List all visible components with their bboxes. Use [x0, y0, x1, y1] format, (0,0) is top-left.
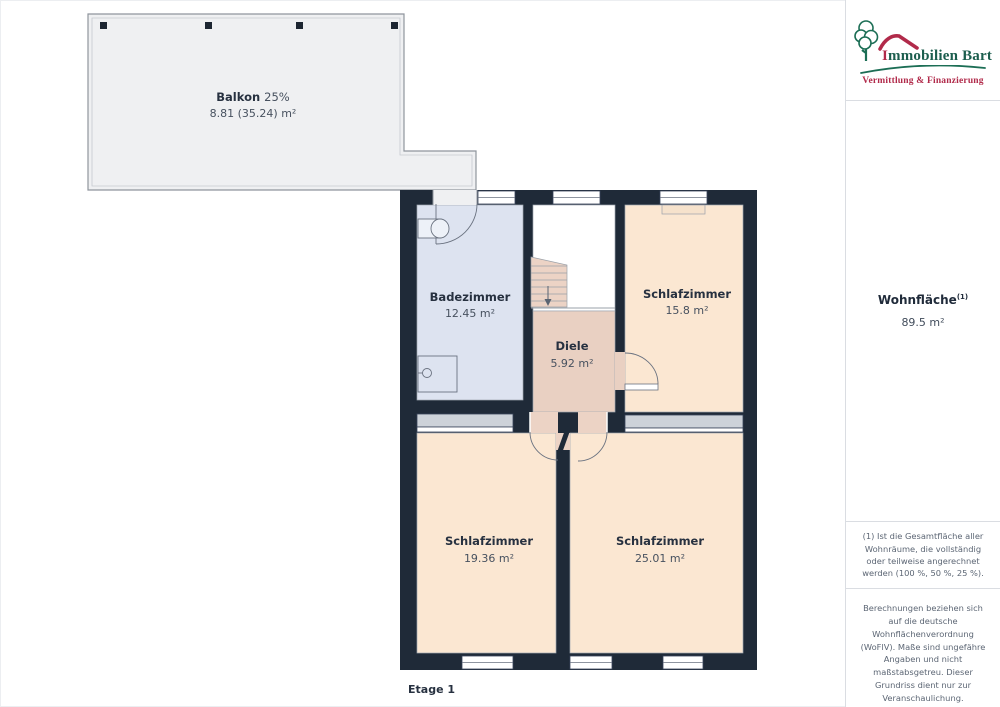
label-schlafzimmer-1: Schlafzimmer — [643, 287, 731, 301]
window — [478, 191, 515, 204]
footnote-text: (1) Ist die Gesamtfläche aller Wohnräume… — [855, 530, 991, 580]
swoosh-underline — [859, 65, 987, 74]
label-schlafzimmer-2-area: 19.36 m² — [464, 552, 514, 565]
floorplan-svg: Balkon25% 8.81 (35.24) m² Badezimmer 12.… — [0, 0, 845, 707]
living-area-value: 89.5 m² — [901, 316, 944, 329]
window — [462, 656, 513, 669]
brand-tagline: Vermittlung & Finanzierung — [862, 76, 984, 86]
label-schlafzimmer-3-area: 25.01 m² — [635, 552, 685, 565]
disclaimer: Berechnungen beziehen sich auf die deuts… — [846, 589, 1000, 707]
brand-name: Immobilien Bart — [882, 49, 992, 64]
balcony-post — [296, 22, 303, 29]
window — [570, 656, 612, 669]
roof-icon — [878, 33, 920, 51]
living-area-label: Wohnfläche(1) — [878, 293, 968, 307]
footnote-marker: (1) — [957, 293, 968, 301]
logo-section: Immobilien Bart Vermittlung & Finanzieru… — [846, 0, 1000, 101]
footnote: (1) Ist die Gesamtfläche aller Wohnräume… — [846, 522, 1000, 589]
label-balkon: Balkon25% — [216, 90, 290, 104]
balcony-post — [100, 22, 107, 29]
floor-label: Etage 1 — [408, 683, 455, 696]
label-schlafzimmer-1-area: 15.8 m² — [665, 304, 708, 317]
label-diele-area: 5.92 m² — [550, 357, 593, 370]
label-diele: Diele — [555, 339, 588, 353]
disclaimer-text: Berechnungen beziehen sich auf die deuts… — [856, 602, 990, 705]
living-area-summary: Wohnfläche(1) 89.5 m² — [846, 101, 1000, 522]
label-schlafzimmer-3: Schlafzimmer — [616, 534, 704, 548]
balcony-post — [391, 22, 398, 29]
window — [663, 656, 703, 669]
sink — [418, 219, 449, 238]
floorplan-page: Balkon25% 8.81 (35.24) m² Badezimmer 12.… — [0, 0, 1000, 707]
balcony-post — [205, 22, 212, 29]
window — [553, 191, 600, 204]
floorplan-canvas: Balkon25% 8.81 (35.24) m² Badezimmer 12.… — [0, 0, 845, 707]
label-balkon-area: 8.81 (35.24) m² — [210, 107, 297, 120]
window — [660, 191, 707, 214]
label-schlafzimmer-2: Schlafzimmer — [445, 534, 533, 548]
sidebar: Immobilien Bart Vermittlung & Finanzieru… — [845, 0, 1000, 707]
label-badezimmer: Badezimmer — [430, 290, 511, 304]
label-badezimmer-area: 12.45 m² — [445, 307, 495, 320]
